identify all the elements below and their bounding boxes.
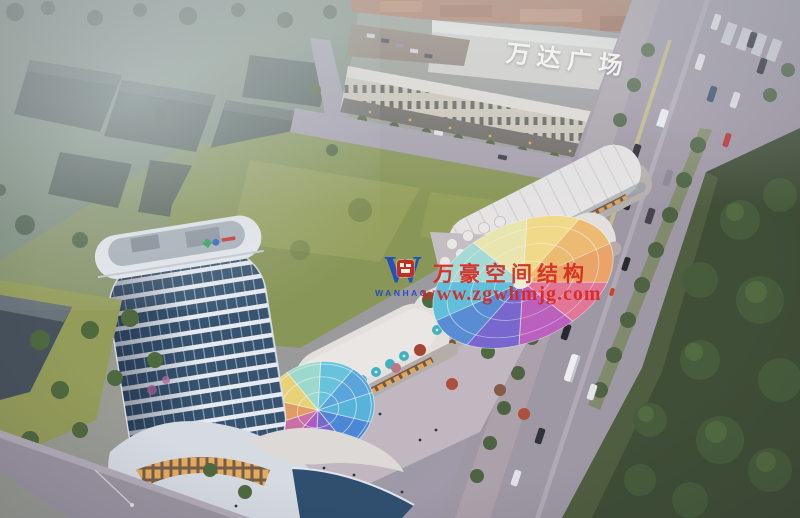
watermark-seal-icon bbox=[397, 260, 414, 277]
watermark-url-text: www.zgwhmjg.com bbox=[421, 283, 602, 306]
aerial-rendering: 万达广场 W WANHAO 万豪空间结构 www.zgwhmjg.com bbox=[0, 0, 800, 518]
